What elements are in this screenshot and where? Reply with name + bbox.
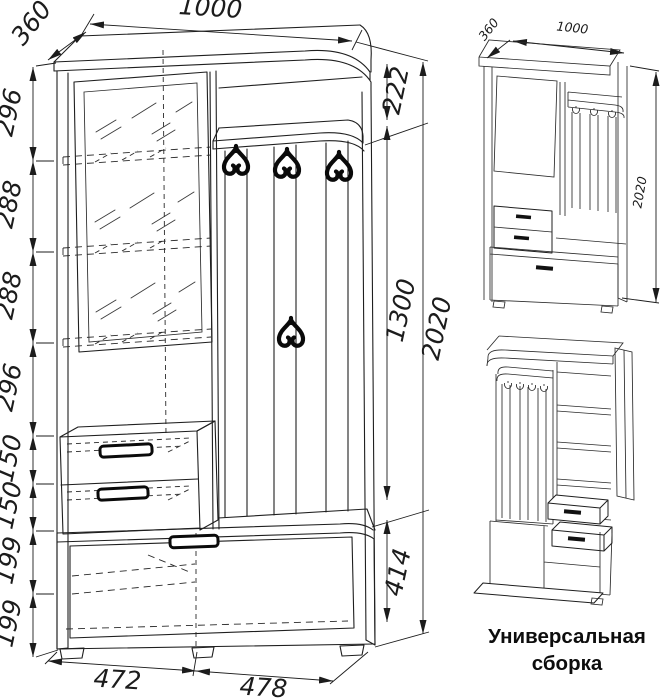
coat-hook-icon	[327, 152, 351, 180]
bottom-dimension-chain: 472 478	[45, 652, 368, 700]
av1-mirror	[494, 76, 557, 177]
av1-door-handle	[536, 265, 553, 270]
av2-bottom-board	[474, 583, 603, 603]
mirror-glass-hatch	[95, 102, 195, 321]
assembly-view-back: Универсальная сборка	[474, 336, 646, 675]
dim-left-150a: 150	[0, 432, 28, 485]
drawer-handle	[98, 487, 149, 501]
dim-left-296b: 296	[0, 361, 28, 414]
mini-hook-icon	[540, 384, 547, 392]
drawing-page: 1000 360 296 288 288 296 150 150 199 199	[0, 0, 665, 700]
cabinet-door	[70, 537, 354, 638]
av2-open-drawer	[548, 495, 608, 524]
av1-dim-1000: 1000	[556, 18, 589, 36]
mini-hook-icon	[528, 383, 535, 391]
dim-left-296a: 296	[0, 86, 28, 139]
dim-bottom-472: 472	[93, 664, 142, 696]
coat-hook-icon	[275, 149, 299, 177]
av1-dim-2020: 2020	[629, 175, 649, 209]
main-view	[54, 25, 375, 659]
dim-right-1300: 1300	[380, 276, 422, 344]
mini-hook-icon	[572, 106, 579, 114]
coat-hook-icon	[279, 318, 303, 346]
dim-left-150b: 150	[0, 479, 28, 532]
center-divider	[210, 71, 219, 529]
av2-unit	[474, 336, 634, 605]
dim-right-414: 414	[379, 546, 417, 599]
dim-bottom-478: 478	[239, 672, 288, 700]
mirror-panel	[74, 72, 212, 352]
dim-left-288b: 288	[0, 269, 28, 322]
assembly-view-front: 360 1000 2020	[475, 15, 659, 313]
dim-width-1000: 1000	[178, 0, 243, 24]
caption-line-1: Универсальная	[488, 625, 646, 648]
av1-unit	[479, 40, 627, 313]
dimensions: 1000 360 296 288 288 296 150 150 199 199	[0, 0, 457, 700]
door-handle	[170, 535, 218, 548]
drawer-unit	[60, 421, 218, 534]
dim-right-222: 222	[377, 64, 415, 117]
caption-line-2: сборка	[532, 652, 603, 675]
bottom-cabinet	[57, 509, 375, 649]
drawer-handle	[100, 444, 153, 458]
hook-section-shelf	[213, 77, 364, 151]
left-side-panel	[57, 71, 68, 649]
coat-hooks	[224, 146, 351, 346]
dim-left-288a: 288	[0, 178, 28, 231]
furniture-technical-drawing: 1000 360 296 288 288 296 150 150 199 199	[0, 0, 665, 700]
coat-hook-icon	[224, 146, 248, 174]
right-side-panel	[362, 89, 375, 645]
hook-slats	[225, 141, 348, 517]
av2-open-drawer	[552, 522, 612, 551]
left-dimension-chain: 296 288 288 296 150 150 199 199	[0, 63, 58, 657]
mini-hook-icon	[504, 381, 511, 389]
av1-dim-360: 360	[475, 15, 502, 43]
dim-depth-360: 360	[5, 0, 57, 50]
dim-left-199a: 199	[0, 534, 28, 587]
hidden-shelves-dashed	[63, 50, 211, 437]
dim-right-2020: 2020	[416, 294, 458, 362]
dim-left-199b: 199	[0, 597, 28, 650]
feet	[60, 645, 364, 659]
